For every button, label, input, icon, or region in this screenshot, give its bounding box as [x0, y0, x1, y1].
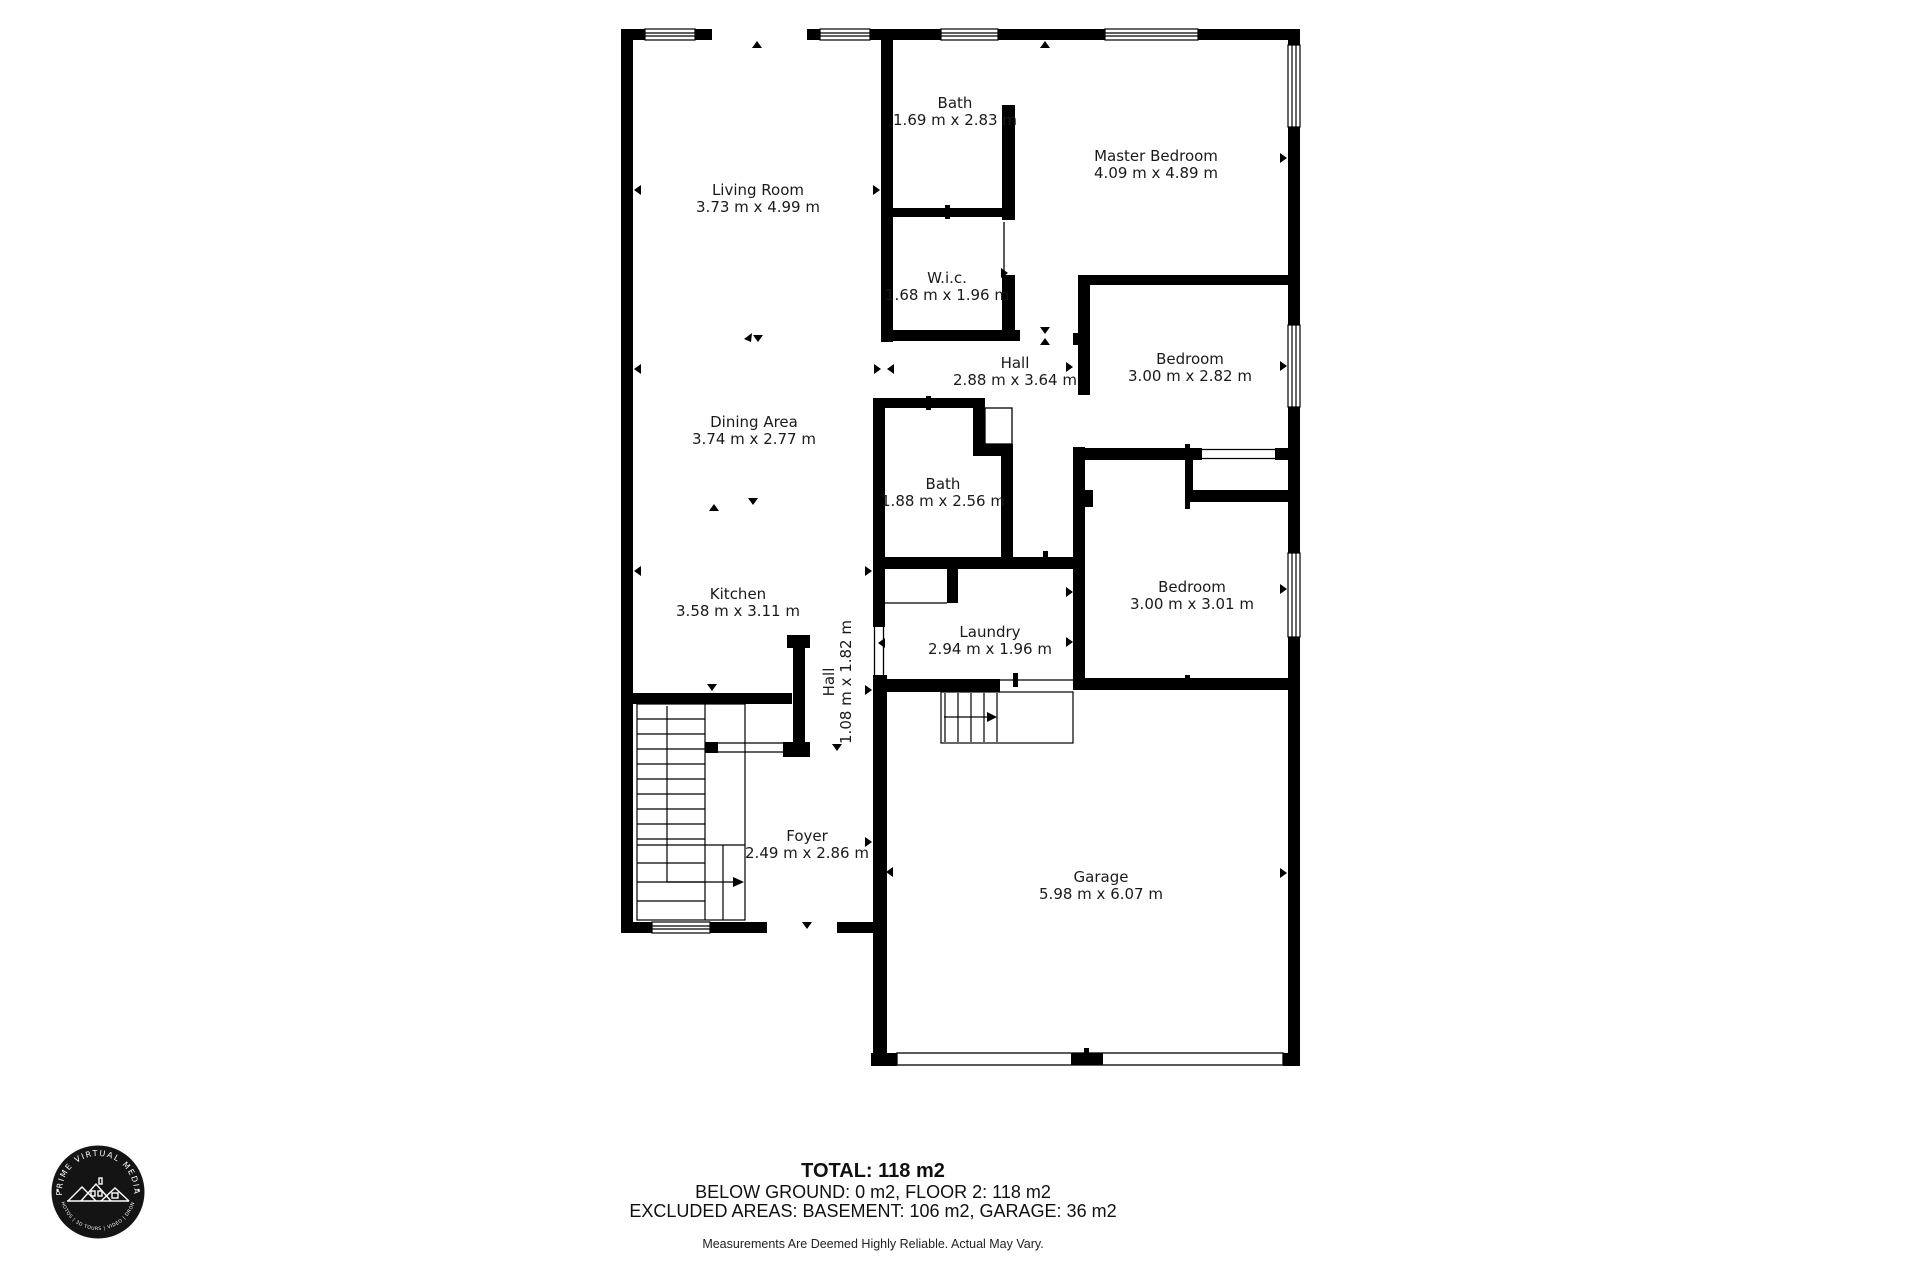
- summary-total: TOTAL: 118 m2: [801, 1160, 945, 1183]
- room-name: Laundry: [928, 624, 1052, 641]
- logo-dot-left: [56, 1189, 58, 1191]
- room-name: Dining Area: [692, 414, 816, 431]
- room-label-dining-area: Dining Area 3.74 m x 2.77 m: [692, 414, 816, 448]
- room-name: Hall: [821, 620, 838, 744]
- room-dims: 3.00 m x 3.01 m: [1130, 596, 1254, 613]
- room-name: Bath: [881, 476, 1005, 493]
- room-dims: 2.49 m x 2.86 m: [745, 845, 869, 862]
- room-name: Master Bedroom: [1094, 148, 1218, 165]
- room-name: Living Room: [696, 182, 820, 199]
- window-top-bath: [941, 29, 998, 40]
- window-foyer: [652, 922, 710, 933]
- room-label-laundry: Laundry 2.94 m x 1.96 m: [928, 624, 1052, 658]
- room-dims: 3.00 m x 2.82 m: [1128, 368, 1252, 385]
- room-label-hall-small: Hall 1.08 m x 1.82 m: [821, 620, 855, 744]
- staircase-main: [637, 704, 745, 920]
- prime-virtual-media-logo: PRIME VIRTUAL MEDIA PHOTOS | 3D TOURS | …: [50, 1144, 146, 1240]
- room-dims: 3.58 m x 3.11 m: [676, 603, 800, 620]
- room-name: W.i.c.: [885, 270, 1009, 287]
- room-dims: 5.98 m x 6.07 m: [1039, 886, 1163, 903]
- room-label-wic: W.i.c. 1.68 m x 1.96 m: [885, 270, 1009, 304]
- room-label-living-room: Living Room 3.73 m x 4.99 m: [696, 182, 820, 216]
- room-name: Kitchen: [676, 586, 800, 603]
- room-label-foyer: Foyer 2.49 m x 2.86 m: [745, 828, 869, 862]
- room-label-garage: Garage 5.98 m x 6.07 m: [1039, 869, 1163, 903]
- room-dims: 1.88 m x 2.56 m: [881, 493, 1005, 510]
- room-dims: 1.69 m x 2.83 m: [893, 112, 1017, 129]
- window-right-master: [1288, 45, 1300, 127]
- room-name: Bedroom: [1130, 579, 1254, 596]
- staircase-basement: [941, 692, 1073, 743]
- window-top-living2: [820, 29, 870, 40]
- room-dims: 1.08 m x 1.82 m: [838, 620, 855, 744]
- summary-floors: BELOW GROUND: 0 m2, FLOOR 2: 118 m2: [695, 1182, 1051, 1203]
- room-dims: 2.94 m x 1.96 m: [928, 641, 1052, 658]
- room-label-master-bedroom: Master Bedroom 4.09 m x 4.89 m: [1094, 148, 1218, 182]
- room-label-bath-2: Bath 1.88 m x 2.56 m: [881, 476, 1005, 510]
- logo-dot-right: [137, 1189, 139, 1191]
- room-dims: 2.88 m x 3.64 m: [953, 372, 1077, 389]
- summary-excluded: EXCLUDED AREAS: BASEMENT: 106 m2, GARAGE…: [629, 1201, 1116, 1222]
- window-right-bedroom1: [1288, 325, 1300, 407]
- room-dims: 1.68 m x 1.96 m: [885, 287, 1009, 304]
- room-label-bath-master: Bath 1.69 m x 2.83 m: [893, 95, 1017, 129]
- room-name: Bath: [893, 95, 1017, 112]
- room-name: Hall: [953, 355, 1077, 372]
- window-top-living: [645, 29, 695, 40]
- room-dims: 3.73 m x 4.99 m: [696, 199, 820, 216]
- room-dims: 3.74 m x 2.77 m: [692, 431, 816, 448]
- room-label-hall: Hall 2.88 m x 3.64 m: [953, 355, 1077, 389]
- room-label-bedroom-1: Bedroom 3.00 m x 2.82 m: [1128, 351, 1252, 385]
- room-name: Bedroom: [1128, 351, 1252, 368]
- floor-plan-page: Living Room 3.73 m x 4.99 m Bath 1.69 m …: [0, 0, 1920, 1280]
- window-right-bedroom2: [1288, 553, 1300, 637]
- room-dims: 4.09 m x 4.89 m: [1094, 165, 1218, 182]
- room-label-kitchen: Kitchen 3.58 m x 3.11 m: [676, 586, 800, 620]
- room-name: Garage: [1039, 869, 1163, 886]
- room-name: Foyer: [745, 828, 869, 845]
- summary-disclaimer: Measurements Are Deemed Highly Reliable.…: [702, 1237, 1043, 1251]
- garage-door: [897, 1053, 1283, 1065]
- window-top-master: [1105, 29, 1198, 40]
- room-label-bedroom-2: Bedroom 3.00 m x 3.01 m: [1130, 579, 1254, 613]
